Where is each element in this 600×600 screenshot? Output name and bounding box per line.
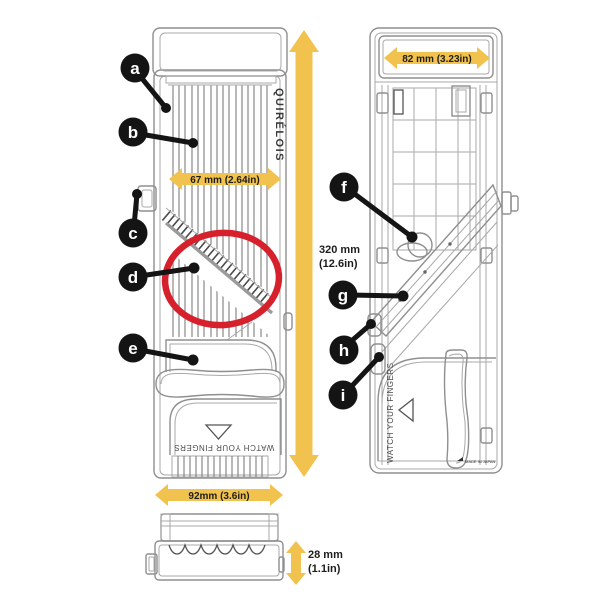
callout-c: c bbox=[119, 189, 148, 248]
brand-label: QUIRÉLOIS bbox=[273, 88, 286, 162]
blade-width-value: 67 mm (2.64in) bbox=[190, 175, 259, 186]
height-value-mm: 320 mm bbox=[319, 244, 360, 256]
side-view: 28 mm (1.1in) bbox=[146, 514, 343, 585]
back-view: WATCH YOUR FINGERS MADE IN JAPAN 82 mm (… bbox=[368, 28, 518, 473]
height-value-in: (12.6in) bbox=[319, 258, 358, 270]
triangle-warning-icon-back bbox=[399, 399, 413, 421]
blade-width-dimension: 67 mm (2.64in) bbox=[169, 168, 281, 190]
julienne-teeth bbox=[169, 545, 265, 554]
arrow-up-down-icon bbox=[289, 30, 319, 477]
right-side-tab bbox=[284, 313, 292, 330]
warning-label-front: WATCH YOUR FINGERS bbox=[174, 443, 274, 452]
thickness-value-in: (1.1in) bbox=[308, 563, 341, 575]
callout-a: a bbox=[121, 54, 172, 114]
callout-g-letter: g bbox=[338, 286, 348, 305]
thickness-value-mm: 28 mm bbox=[308, 549, 343, 561]
callout-f-letter: f bbox=[341, 178, 347, 197]
callout-g: g bbox=[329, 281, 409, 310]
overall-height-dimension: 320 mm (12.6in) bbox=[289, 30, 360, 477]
front-bottom-ribs bbox=[172, 456, 268, 477]
lower-diagonal-line-2 bbox=[392, 245, 498, 364]
thickness-dimension: 28 mm (1.1in) bbox=[286, 541, 343, 585]
callout-b: b bbox=[119, 118, 199, 149]
front-blade-assembly bbox=[166, 206, 272, 340]
back-pusher-housing: WATCH YOUR FINGERS MADE IN JAPAN bbox=[378, 350, 496, 468]
callout-a-letter: a bbox=[130, 59, 140, 78]
back-grip-handle bbox=[445, 350, 469, 468]
front-lower-platform: WATCH YOUR FINGERS bbox=[156, 340, 284, 477]
callout-f: f bbox=[330, 173, 418, 243]
callout-d-letter: d bbox=[128, 268, 138, 287]
callout-e-letter: e bbox=[128, 339, 137, 358]
callout-e: e bbox=[119, 334, 199, 366]
back-width-value: 82 mm (3.23in) bbox=[402, 54, 471, 65]
warning-label-back: WATCH YOUR FINGERS bbox=[386, 363, 395, 463]
triangle-warning-icon-front bbox=[206, 425, 231, 439]
back-side-tab bbox=[502, 192, 518, 214]
body-width-dimension: 92mm (3.6in) bbox=[155, 484, 283, 506]
callout-d: d bbox=[119, 263, 200, 292]
front-top-handle bbox=[153, 28, 287, 83]
side-deck bbox=[161, 514, 278, 541]
back-width-dimension: 82 mm (3.23in) bbox=[384, 47, 490, 69]
body-width-value: 92mm (3.6in) bbox=[188, 491, 249, 502]
callout-i-letter: i bbox=[341, 386, 346, 405]
mandoline-diagram: QUIRÉLOIS WATCH YOUR FINGERS 67 mm (2.64… bbox=[0, 0, 600, 600]
diagram-canvas: QUIRÉLOIS WATCH YOUR FINGERS 67 mm (2.64… bbox=[0, 0, 600, 600]
callout-b-letter: b bbox=[128, 123, 138, 142]
callout-c-letter: c bbox=[128, 224, 137, 243]
tiny-arrow-icon bbox=[457, 457, 463, 461]
arrow-up-down-icon bbox=[286, 541, 306, 585]
back-grid-lattice bbox=[393, 86, 476, 250]
callout-h: h bbox=[330, 319, 377, 365]
callout-h-letter: h bbox=[339, 341, 349, 360]
fine-print: MADE IN JAPAN bbox=[465, 459, 495, 464]
